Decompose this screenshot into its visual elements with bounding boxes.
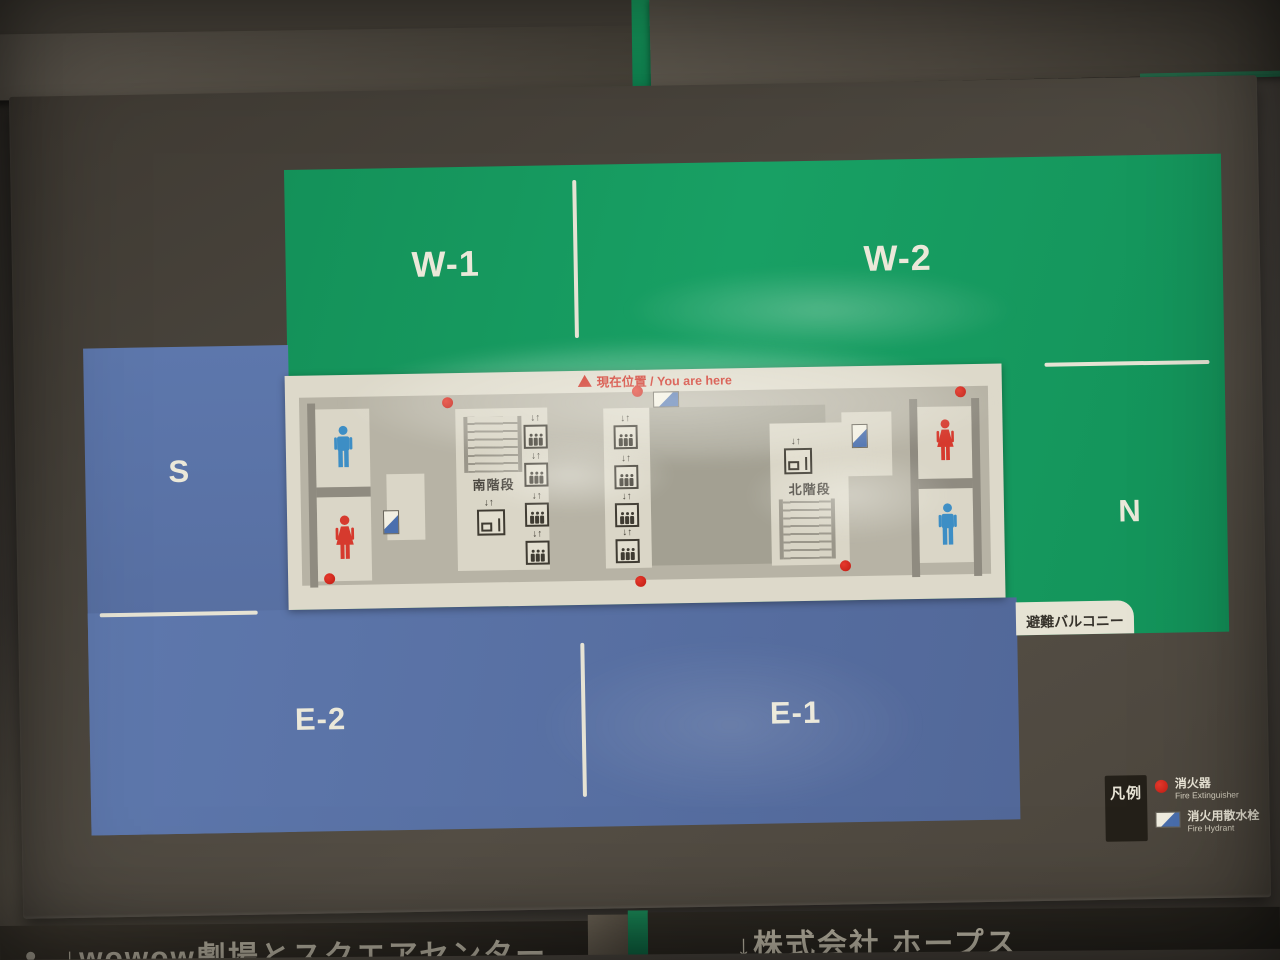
- bottom-sign-right: ↓株式会社 ホープス: [648, 907, 1280, 955]
- wall-green-strip-bottom: [628, 910, 648, 954]
- bottom-sign-right-text: ↓株式会社 ホープス: [736, 918, 1018, 954]
- photo-floor-map-sign: W-1 W-2 S N E-2 E-1 避難バルコニー: [0, 0, 1280, 960]
- bottom-sign-left-text: ↓wowow劇場とスクエアセンター: [62, 929, 547, 960]
- bullet-dot: [26, 952, 35, 960]
- bottom-sign-left: ↓wowow劇場とスクエアセンター: [0, 921, 588, 960]
- wall-gap: [588, 915, 628, 955]
- bottom-signs-row: ↓wowow劇場とスクエアセンター ↓株式会社 ホープス: [0, 0, 1280, 960]
